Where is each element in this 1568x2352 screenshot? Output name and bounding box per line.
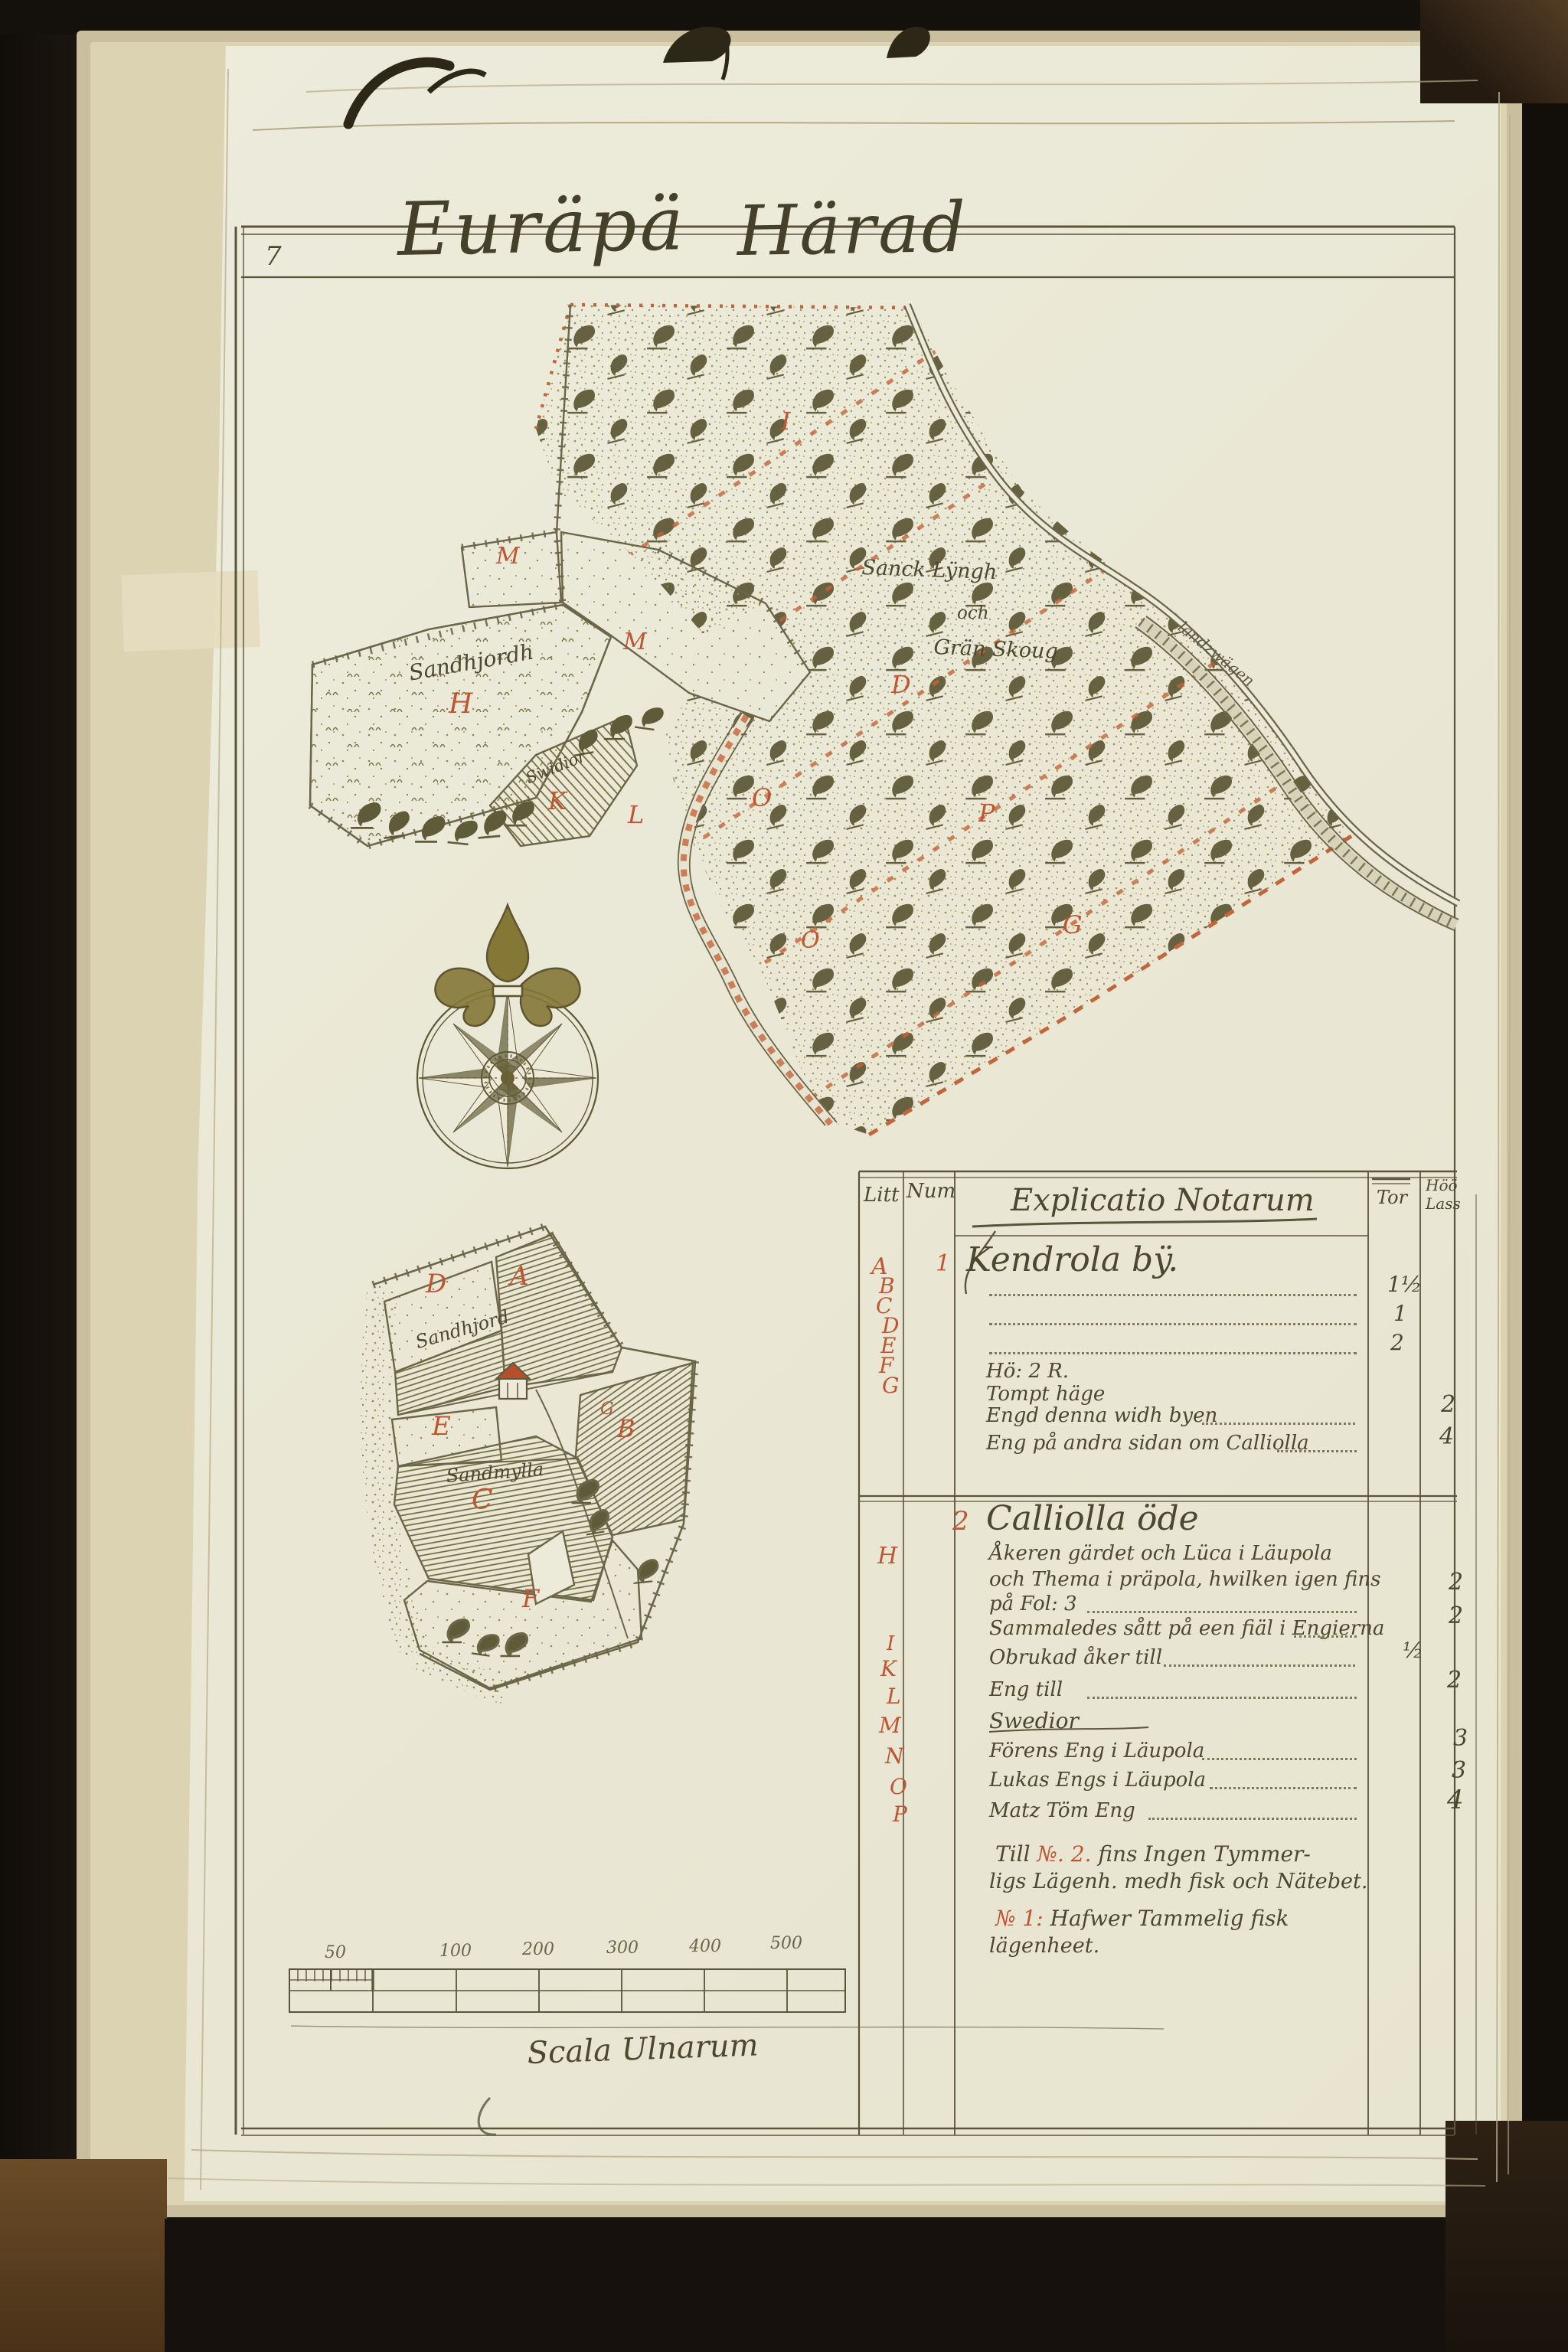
- forest-label-2: och: [957, 605, 989, 622]
- value-row-n: 3: [1453, 1727, 1468, 1750]
- sec1-title: Kendrola bÿ.: [966, 1243, 1178, 1277]
- scale-caption: Scala Ulnarum: [527, 2030, 759, 2069]
- sec2-litt-k: K: [880, 1658, 897, 1680]
- inset-letter-c: C: [472, 1487, 493, 1514]
- value-row-g: 4: [1439, 1426, 1454, 1449]
- row-k-text: Obrukad åker till: [989, 1648, 1162, 1668]
- footnote1: Till №. 2. fins Ingen Tymmer-: [995, 1844, 1311, 1865]
- row-h1-text: Åkeren gärdet och Lüca i Läupola: [989, 1543, 1332, 1563]
- col-header-num: Num: [906, 1181, 955, 1201]
- map-letter-k: K: [548, 789, 567, 813]
- sec2-litt-m: M: [879, 1715, 901, 1736]
- leader-row-b: [989, 1323, 1357, 1325]
- footnote4: lägenheet.: [989, 1935, 1099, 1956]
- map-letter-o1: O: [752, 786, 772, 810]
- leader-row-p: [1148, 1818, 1357, 1820]
- map-letter-o2: O: [801, 929, 820, 952]
- sec2-litt-l: L: [887, 1686, 901, 1707]
- scale-label-50: 50: [325, 1945, 346, 1962]
- row-g-text: Eng på andra sidan om Calliolla: [986, 1433, 1309, 1453]
- leader-row-l: [1087, 1697, 1357, 1699]
- map-drawing: [0, 0, 1568, 2352]
- value-row-k: ½: [1403, 1640, 1423, 1661]
- col-header-explicatio: Explicatio Notarum: [1011, 1185, 1315, 1216]
- row-p-text: Matz Töm Eng: [989, 1801, 1135, 1821]
- col-header-lass1: Höö: [1426, 1178, 1458, 1193]
- map-letter-l: L: [628, 802, 644, 827]
- sec2-title: Calliolla öde: [986, 1502, 1199, 1536]
- previous-page-calligraphy: [348, 27, 930, 124]
- sec2-litt-p: P: [893, 1804, 907, 1825]
- sec2-litt-o: O: [890, 1776, 907, 1798]
- scale-label-100: 100: [439, 1943, 472, 1960]
- scale-label-500: 500: [770, 1935, 802, 1952]
- col-header-litt: Litt: [864, 1185, 899, 1205]
- col-header-tor: Tor: [1377, 1188, 1407, 1207]
- forest-label-1: Sanck Lÿngh: [861, 557, 998, 583]
- map-letter-i: I: [781, 409, 791, 433]
- inset-letter-a: A: [510, 1263, 529, 1289]
- photographed-atlas-page: 7 Euräpä Härad Sanck Lÿngh och Grän Skou…: [0, 0, 1568, 2352]
- leader-row-k: [1164, 1664, 1355, 1667]
- sec1-litt-g: G: [882, 1375, 899, 1396]
- scale-label-300: 300: [606, 1940, 639, 1957]
- value-row-l: 2: [1447, 1669, 1462, 1692]
- footnote1-no: №. 2.: [1037, 1841, 1091, 1867]
- footnote2: ligs Lägenh. medh fisk och Nätebet.: [989, 1871, 1367, 1892]
- inset-letter-b: B: [617, 1416, 635, 1441]
- sec2-litt-i: I: [887, 1634, 894, 1654]
- value-row-a: 1½: [1387, 1274, 1422, 1295]
- map-letter-g: G: [1063, 913, 1083, 937]
- row-d-text: Hö: 2 R.: [986, 1361, 1069, 1381]
- row-f-text: Engd denna widh byen: [986, 1406, 1217, 1426]
- row-h3-text: på Fol: 3: [989, 1594, 1077, 1614]
- map-letter-p: P: [978, 801, 995, 825]
- map-title-word2: Härad: [737, 194, 969, 266]
- row-e-text: Tompt häge: [986, 1384, 1105, 1404]
- footnote3-post: Hafwer Tammelig fisk: [1044, 1906, 1289, 1931]
- inset-letter-d: D: [426, 1271, 446, 1297]
- table-grid: [859, 1171, 1476, 2135]
- sec2-litt-h: H: [877, 1545, 897, 1568]
- inset-letter-f: F: [522, 1586, 539, 1611]
- leader-row-n: [1202, 1758, 1357, 1760]
- inset-letter-g: G: [600, 1401, 614, 1418]
- footnote3: № 1: Hafwer Tammelig fisk: [995, 1908, 1289, 1929]
- footnote1-post: fins Ingen Tymmer-: [1091, 1841, 1310, 1867]
- value-row-h3: 2: [1449, 1571, 1463, 1594]
- footnote1-pre: Till: [995, 1841, 1037, 1867]
- leader-row-h3: [1087, 1611, 1357, 1613]
- row-o-text: Lukas Engs i Läupola: [989, 1770, 1206, 1790]
- row-l-text: Eng till: [989, 1680, 1063, 1700]
- value-row-o: 3: [1452, 1759, 1466, 1782]
- map-letter-m1: M: [496, 545, 520, 568]
- leader-row-i: [1294, 1635, 1357, 1638]
- row-n-text: Förens Eng i Läupola: [989, 1741, 1204, 1761]
- page-number: 7: [265, 243, 282, 269]
- map-letter-m2: M: [623, 631, 647, 654]
- sec2-litt-n: N: [885, 1746, 904, 1767]
- value-row-f: 2: [1441, 1393, 1455, 1416]
- compass-rose: [417, 905, 598, 1168]
- value-row-c: 2: [1390, 1332, 1404, 1354]
- value-row-i: 2: [1449, 1605, 1463, 1628]
- map-title-word1: Euräpä: [397, 187, 688, 266]
- leader-row-f: [1202, 1423, 1355, 1425]
- inset-letter-e: E: [432, 1413, 451, 1439]
- leader-row-c: [989, 1352, 1357, 1354]
- map-letter-d: D: [891, 672, 911, 697]
- forest-label-3: Grän Skoug: [933, 637, 1058, 662]
- footnote3-no: № 1:: [995, 1906, 1044, 1931]
- row-m-text: Swedior: [989, 1710, 1079, 1732]
- leader-row-a: [989, 1294, 1357, 1296]
- col-header-lass2: Lass: [1426, 1196, 1461, 1211]
- value-row-p: 4: [1447, 1787, 1464, 1813]
- scale-label-200: 200: [522, 1942, 554, 1958]
- row-h2-text: och Thema i präpola, hwilken igen fins: [989, 1570, 1380, 1589]
- sec2-num: 2: [952, 1508, 969, 1534]
- leader-row-g: [1277, 1450, 1357, 1452]
- sec1-num: 1: [936, 1253, 950, 1276]
- value-row-b: 1: [1393, 1303, 1407, 1325]
- map-letter-h: H: [449, 691, 472, 718]
- scale-label-400: 400: [689, 1939, 721, 1955]
- leader-row-o: [1210, 1787, 1357, 1789]
